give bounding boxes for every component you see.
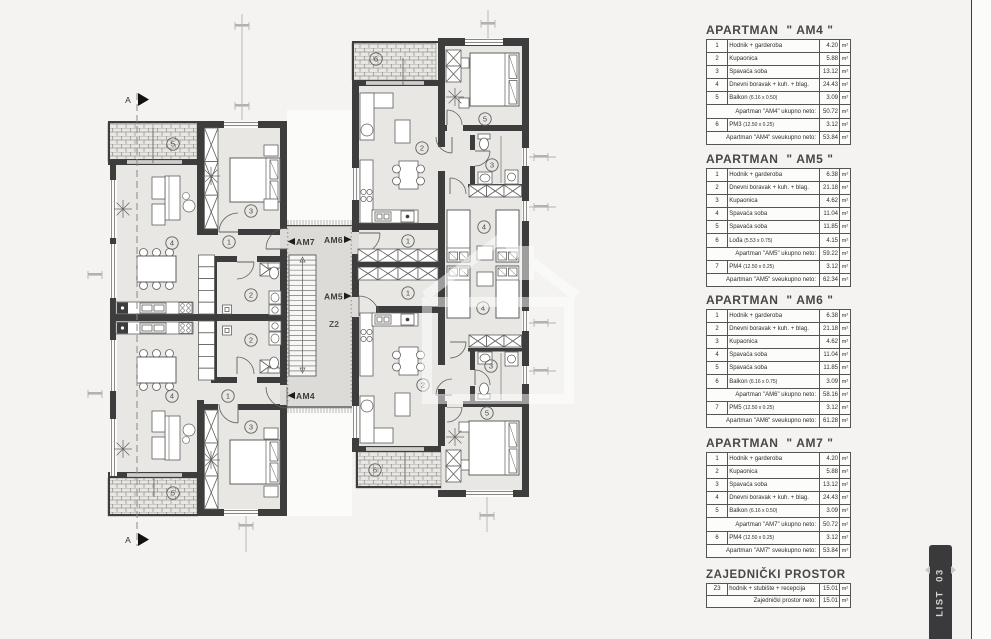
svg-text:4: 4: [482, 223, 486, 232]
svg-text:5: 5: [483, 115, 487, 124]
svg-text:5: 5: [485, 409, 489, 418]
svg-text:3: 3: [490, 161, 494, 170]
svg-text:5: 5: [171, 489, 175, 498]
svg-text:AM6: AM6: [324, 235, 343, 245]
svg-text:3: 3: [249, 207, 253, 216]
svg-text:4: 4: [170, 239, 174, 248]
svg-text:3: 3: [249, 423, 253, 432]
svg-text:2: 2: [249, 336, 253, 345]
svg-text:6: 6: [373, 466, 377, 475]
svg-text:AM7: AM7: [296, 237, 315, 247]
svg-text:3: 3: [489, 362, 493, 371]
svg-text:2: 2: [249, 291, 253, 300]
svg-text:1: 1: [227, 238, 231, 247]
svg-text:4: 4: [170, 392, 174, 401]
svg-text:1: 1: [226, 392, 230, 401]
svg-text:AM5: AM5: [324, 292, 343, 302]
svg-text:A: A: [125, 95, 131, 105]
svg-text:1: 1: [406, 237, 410, 246]
svg-text:2: 2: [420, 144, 424, 153]
svg-text:1: 1: [406, 289, 410, 298]
svg-text:5: 5: [171, 140, 175, 149]
svg-text:6: 6: [374, 55, 378, 64]
svg-text:A: A: [125, 535, 131, 545]
svg-text:Z2: Z2: [329, 319, 339, 329]
svg-text:AM4: AM4: [296, 391, 315, 401]
